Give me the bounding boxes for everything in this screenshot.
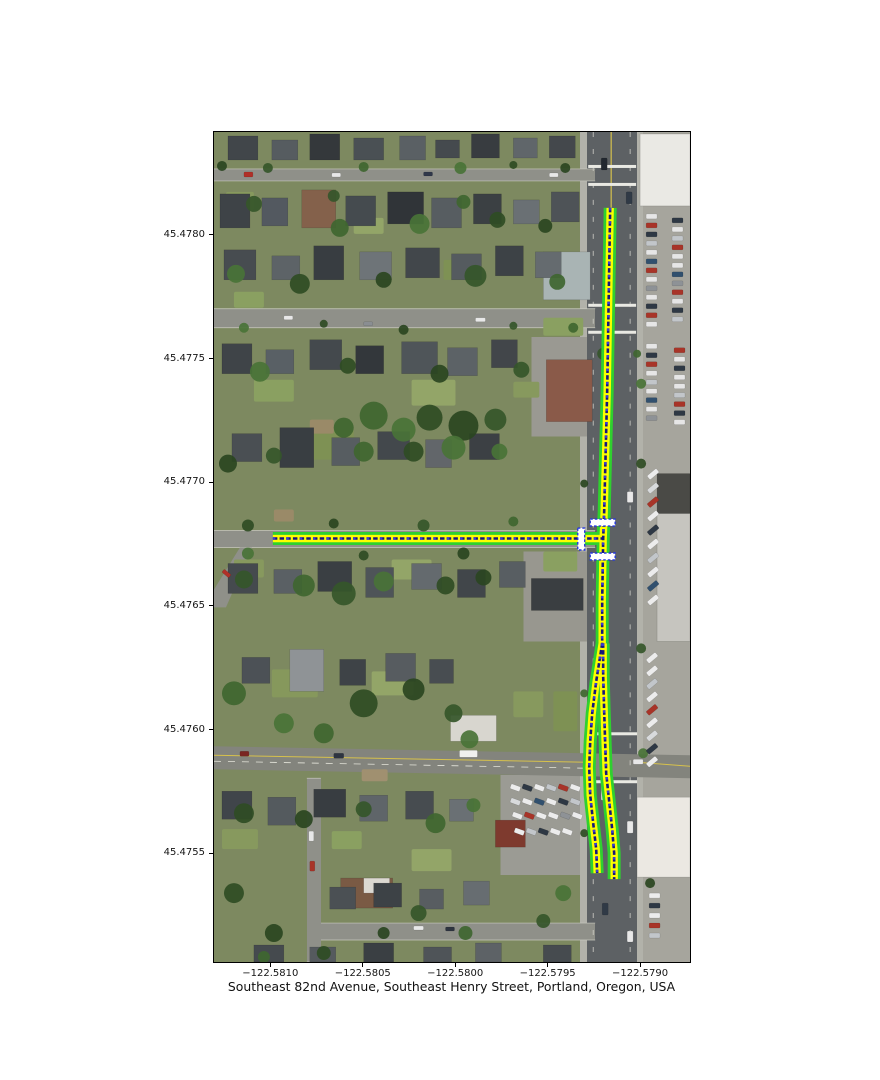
house xyxy=(400,136,426,160)
tree xyxy=(636,643,646,653)
house xyxy=(463,881,489,905)
car xyxy=(602,903,608,915)
house xyxy=(228,136,258,160)
tree xyxy=(266,448,282,464)
car xyxy=(475,318,485,322)
y-tick-label: 45.4755 xyxy=(0,847,205,859)
route-node-marker xyxy=(590,553,615,560)
tree xyxy=(360,402,388,430)
tree xyxy=(460,730,478,748)
car xyxy=(646,277,657,282)
car xyxy=(672,299,683,304)
car xyxy=(674,411,685,416)
tree xyxy=(536,914,550,928)
house xyxy=(266,350,294,374)
tree xyxy=(378,927,390,939)
tree xyxy=(374,571,394,591)
tree xyxy=(489,212,505,228)
tree xyxy=(376,272,392,288)
tree xyxy=(340,358,356,374)
house xyxy=(280,428,314,468)
tree xyxy=(328,190,340,202)
tree xyxy=(217,161,227,171)
house xyxy=(430,659,454,683)
car xyxy=(672,290,683,295)
car xyxy=(459,750,477,757)
tree xyxy=(442,436,466,460)
car xyxy=(672,227,683,232)
house xyxy=(551,192,579,222)
house xyxy=(232,434,262,462)
tree xyxy=(431,365,449,383)
car xyxy=(646,389,657,394)
car xyxy=(649,903,660,908)
car xyxy=(672,236,683,241)
house xyxy=(448,348,478,376)
tree xyxy=(404,442,424,462)
car xyxy=(332,173,341,177)
tree xyxy=(329,519,339,529)
street xyxy=(309,923,595,940)
tree xyxy=(437,576,455,594)
y-tick-mark xyxy=(209,482,213,483)
tree xyxy=(458,926,472,940)
tree xyxy=(445,704,463,722)
tree xyxy=(359,550,369,560)
tree xyxy=(509,161,517,169)
car xyxy=(672,263,683,268)
yard-patch xyxy=(274,510,294,522)
car xyxy=(240,751,249,756)
car xyxy=(674,357,685,362)
car xyxy=(672,245,683,250)
route-node-marker xyxy=(578,528,585,550)
house xyxy=(314,789,346,817)
car xyxy=(334,753,344,758)
car xyxy=(674,384,685,389)
yard-patch xyxy=(412,380,456,406)
tree xyxy=(331,219,349,237)
tree xyxy=(555,885,571,901)
tree xyxy=(454,162,466,174)
y-tick-mark xyxy=(209,358,213,359)
tree xyxy=(410,214,430,234)
y-tick-mark xyxy=(209,234,213,235)
house xyxy=(491,340,517,368)
car xyxy=(649,913,660,918)
y-tick-label: 45.4765 xyxy=(0,600,205,612)
tree xyxy=(538,219,552,233)
car xyxy=(309,831,314,841)
house xyxy=(272,140,298,160)
yard-patch xyxy=(513,691,543,717)
house xyxy=(495,246,523,276)
aerial-map xyxy=(214,132,690,962)
car xyxy=(674,420,685,425)
tree xyxy=(464,265,486,287)
tree xyxy=(633,350,641,358)
x-tick-mark xyxy=(270,963,271,967)
tree xyxy=(350,689,378,717)
house xyxy=(475,943,501,962)
building xyxy=(546,360,592,422)
tree xyxy=(411,905,427,921)
tree xyxy=(263,163,273,173)
tree xyxy=(320,320,328,328)
tree xyxy=(356,801,372,817)
car xyxy=(364,322,373,326)
tree xyxy=(636,459,646,469)
house xyxy=(499,561,525,587)
tree xyxy=(235,570,253,588)
car xyxy=(672,254,683,259)
tree xyxy=(418,520,430,532)
yard-patch xyxy=(234,292,264,308)
tree xyxy=(638,748,648,758)
house xyxy=(513,138,537,158)
tree xyxy=(334,418,354,438)
tree xyxy=(224,883,244,903)
x-tick-mark xyxy=(547,963,548,967)
house xyxy=(222,344,252,374)
tree xyxy=(513,362,529,378)
tree xyxy=(417,405,443,431)
tree xyxy=(317,946,331,960)
tree xyxy=(568,323,578,333)
tree xyxy=(359,162,369,172)
house xyxy=(290,649,324,691)
tree xyxy=(484,409,506,431)
car xyxy=(646,241,657,246)
car xyxy=(672,218,683,223)
tree xyxy=(222,681,246,705)
tree xyxy=(234,803,254,823)
yard-patch xyxy=(513,382,539,398)
house xyxy=(374,883,402,907)
tree xyxy=(645,878,655,888)
house xyxy=(310,340,342,370)
x-tick-mark xyxy=(640,963,641,967)
map-title: Southeast 82nd Avenue, Southeast Henry S… xyxy=(163,979,740,994)
crosswalk-bar xyxy=(588,183,636,186)
car xyxy=(674,393,685,398)
tree xyxy=(491,444,507,460)
house xyxy=(310,134,340,160)
tree xyxy=(509,322,517,330)
house xyxy=(242,657,270,683)
car xyxy=(244,172,253,177)
tree xyxy=(580,480,588,488)
car xyxy=(646,380,657,385)
building xyxy=(640,134,690,206)
car xyxy=(646,371,657,376)
building xyxy=(531,578,583,610)
house xyxy=(314,246,344,280)
car xyxy=(646,295,657,300)
house xyxy=(330,887,356,909)
car xyxy=(672,317,683,322)
tree xyxy=(549,274,565,290)
tree xyxy=(354,442,374,462)
car xyxy=(646,232,657,237)
car xyxy=(414,926,424,930)
house xyxy=(346,196,376,226)
tree xyxy=(399,325,409,335)
car xyxy=(672,272,683,277)
house xyxy=(406,248,440,278)
car xyxy=(649,893,660,898)
tree xyxy=(239,323,249,333)
building xyxy=(657,474,690,514)
tree xyxy=(392,418,416,442)
yard-patch xyxy=(412,849,452,871)
tree xyxy=(293,574,315,596)
tree xyxy=(580,829,588,837)
car xyxy=(646,416,657,421)
building xyxy=(657,514,690,642)
house xyxy=(436,140,460,158)
x-tick-mark xyxy=(362,963,363,967)
car xyxy=(646,398,657,403)
house xyxy=(364,943,394,962)
tree xyxy=(246,196,262,212)
y-tick-label: 45.4760 xyxy=(0,724,205,736)
y-tick-mark xyxy=(209,605,213,606)
car xyxy=(674,348,685,353)
car xyxy=(674,402,685,407)
house xyxy=(386,653,416,681)
tree xyxy=(580,689,588,697)
tree xyxy=(219,455,237,473)
house xyxy=(513,200,539,224)
yard-patch xyxy=(332,831,362,849)
car xyxy=(646,250,657,255)
car xyxy=(627,821,633,833)
car xyxy=(646,268,657,273)
yard-patch xyxy=(362,769,388,781)
tree xyxy=(426,813,446,833)
tree xyxy=(456,195,470,209)
house xyxy=(220,194,250,228)
house xyxy=(356,346,384,374)
car xyxy=(649,923,660,928)
house xyxy=(471,134,499,158)
car xyxy=(646,362,657,367)
y-tick-mark xyxy=(209,853,213,854)
car xyxy=(601,158,607,170)
car xyxy=(646,344,657,349)
car xyxy=(446,927,455,931)
y-tick-label: 45.4780 xyxy=(0,229,205,241)
y-tick-mark xyxy=(209,729,213,730)
y-tick-label: 45.4770 xyxy=(0,476,205,488)
tree xyxy=(242,547,254,559)
house xyxy=(340,659,366,685)
car xyxy=(310,861,315,871)
car xyxy=(646,304,657,309)
tree xyxy=(314,723,334,743)
yard-patch xyxy=(543,551,577,571)
house xyxy=(406,791,434,819)
car xyxy=(646,214,657,219)
x-tick-mark xyxy=(455,963,456,967)
car xyxy=(284,316,293,320)
map-plot-area xyxy=(213,131,691,963)
house xyxy=(262,198,288,226)
tree xyxy=(636,379,646,389)
car xyxy=(672,308,683,313)
house xyxy=(543,945,571,962)
tree xyxy=(475,569,491,585)
car xyxy=(646,313,657,318)
car xyxy=(549,173,558,177)
tree xyxy=(457,547,469,559)
tree xyxy=(332,581,356,605)
car xyxy=(646,322,657,327)
car xyxy=(626,192,632,204)
house xyxy=(424,947,452,962)
tree xyxy=(290,274,310,294)
tree xyxy=(508,517,518,527)
tree xyxy=(250,362,270,382)
tree xyxy=(227,265,245,283)
tree xyxy=(274,713,294,733)
house xyxy=(354,138,384,160)
route-node-marker xyxy=(590,519,615,526)
car xyxy=(646,223,657,228)
car xyxy=(646,259,657,264)
building xyxy=(637,797,690,877)
car xyxy=(672,281,683,286)
tree xyxy=(295,810,313,828)
car xyxy=(646,286,657,291)
tree xyxy=(466,798,480,812)
yard-patch xyxy=(553,691,577,731)
car xyxy=(674,375,685,380)
car xyxy=(649,933,660,938)
car xyxy=(633,759,643,764)
crosswalk-bar xyxy=(588,165,636,168)
y-tick-label: 45.4775 xyxy=(0,353,205,365)
yard-patch xyxy=(222,829,258,849)
tree xyxy=(242,520,254,532)
tree xyxy=(403,678,425,700)
car xyxy=(646,353,657,358)
car xyxy=(627,931,633,942)
house xyxy=(420,889,444,909)
figure: 45.478045.477545.477045.476545.476045.47… xyxy=(0,0,880,1080)
car xyxy=(424,172,433,176)
house xyxy=(549,136,575,158)
car xyxy=(674,366,685,371)
car xyxy=(646,407,657,412)
tree xyxy=(560,163,570,173)
car xyxy=(627,492,633,503)
house xyxy=(268,797,296,825)
tree xyxy=(265,924,283,942)
yard-patch xyxy=(254,380,294,402)
